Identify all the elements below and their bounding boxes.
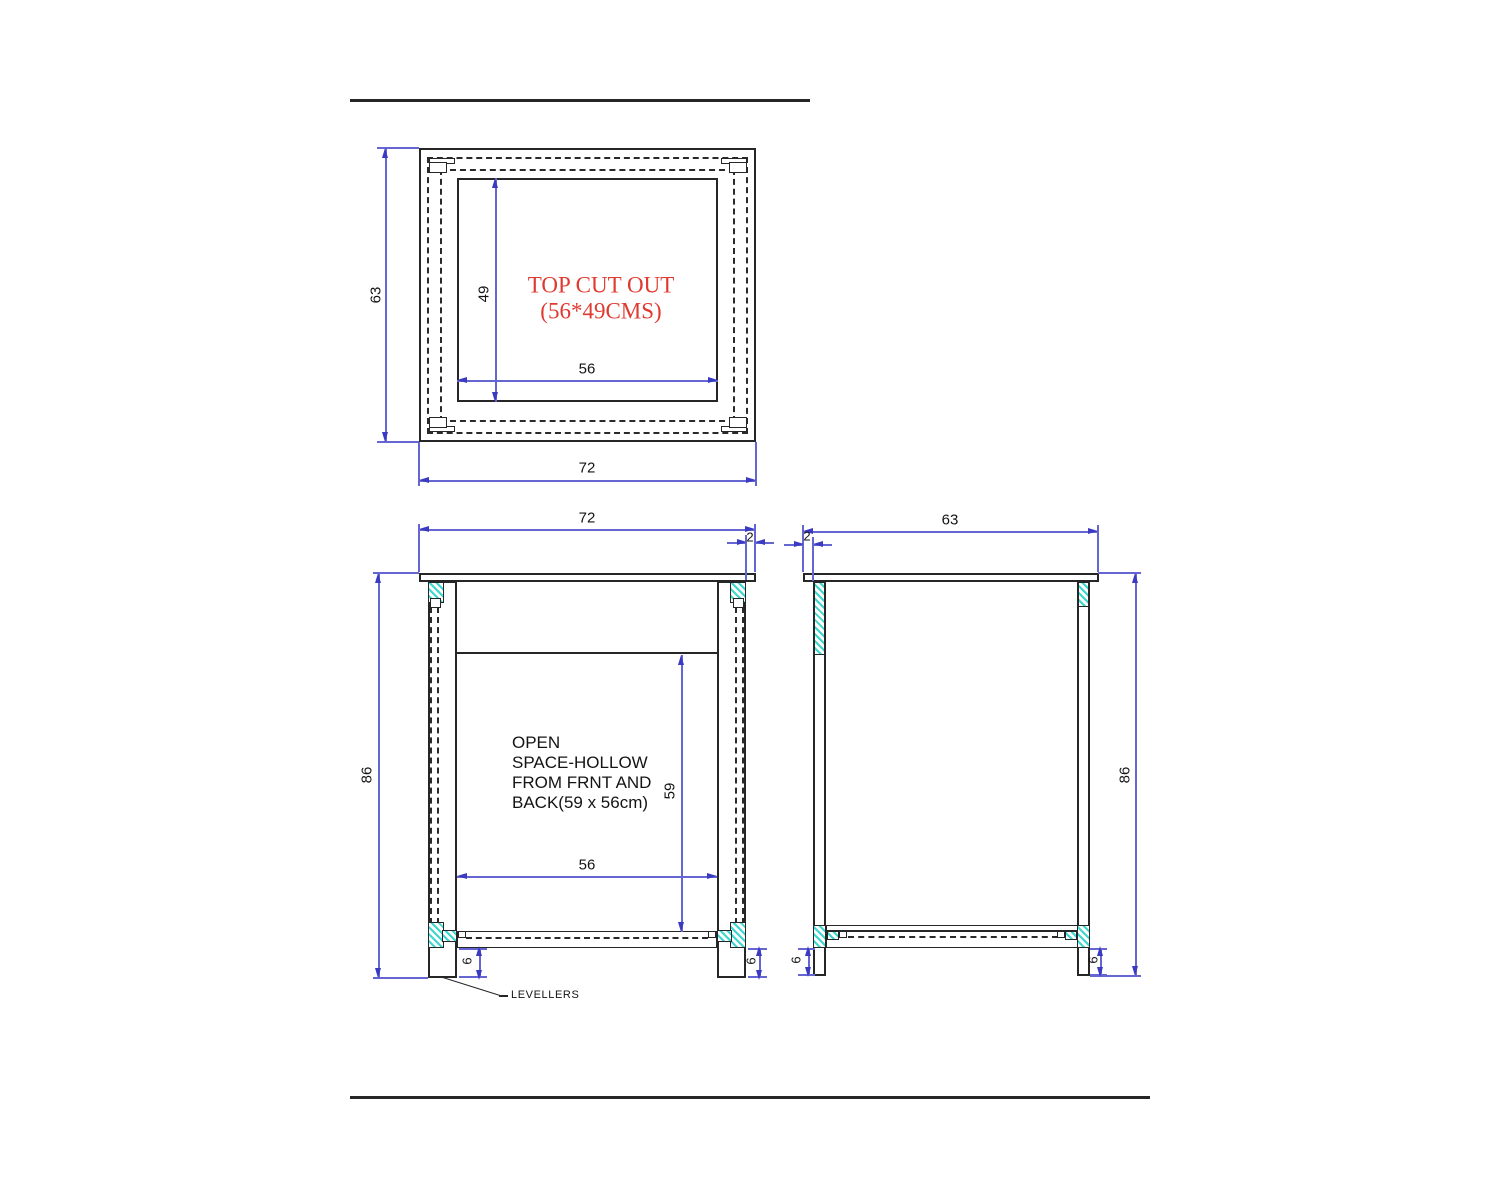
dimension-line-56 bbox=[457, 876, 717, 878]
dimension-text-6: 6 bbox=[745, 957, 758, 964]
front-table-top bbox=[419, 573, 756, 582]
dimension-text-49: 49 bbox=[477, 286, 492, 303]
levellers-label: LEVELLERS bbox=[511, 989, 579, 1001]
hidden-line bbox=[735, 607, 737, 924]
dimension-text-56: 56 bbox=[579, 362, 596, 377]
arrow-up-icon bbox=[678, 655, 684, 665]
dimension-text-2: 2 bbox=[746, 531, 753, 544]
open-space-note-line2: SPACE-HOLLOW bbox=[512, 753, 648, 774]
leveller-leader-line bbox=[443, 977, 501, 996]
dimension-text-6: 6 bbox=[790, 956, 803, 963]
dimension-line-72 bbox=[419, 480, 756, 482]
dimension-line-56 bbox=[457, 380, 718, 382]
arrow-down-icon bbox=[382, 432, 388, 442]
arrow-right-icon bbox=[1088, 528, 1098, 534]
corner-block bbox=[429, 417, 447, 428]
hatch-block bbox=[1078, 582, 1089, 607]
extension-line bbox=[459, 976, 487, 978]
open-space-note-line1: OPEN bbox=[512, 733, 560, 754]
dimension-line-49 bbox=[495, 178, 497, 402]
open-space-note-line3: FROM FRNT AND bbox=[512, 773, 651, 794]
arrow-up-icon bbox=[756, 946, 762, 956]
hatch-block bbox=[442, 930, 457, 942]
side-table-top bbox=[803, 573, 1099, 582]
front-apron-line bbox=[457, 652, 717, 654]
arrow-up-icon bbox=[382, 148, 388, 158]
arrow-up-icon bbox=[375, 573, 381, 583]
arrow-right-icon bbox=[708, 377, 718, 383]
dimension-text-59: 59 bbox=[663, 783, 678, 800]
arrow-down-icon bbox=[1132, 966, 1138, 976]
sheet-bottom-rule bbox=[350, 1096, 1150, 1099]
arrow-up-icon bbox=[476, 946, 482, 956]
hatch-block bbox=[730, 922, 746, 948]
arrow-down-icon bbox=[492, 392, 498, 402]
hidden-line bbox=[848, 936, 1058, 938]
open-space-note-line4: BACK(59 x 56cm) bbox=[512, 793, 648, 814]
hatch-block bbox=[717, 930, 732, 942]
hidden-line bbox=[430, 607, 432, 924]
dimension-line-63 bbox=[385, 148, 387, 442]
dimension-text-56: 56 bbox=[579, 858, 596, 873]
arrow-right-icon bbox=[707, 873, 717, 879]
arrow-down-icon bbox=[476, 970, 482, 980]
dimension-text-63: 63 bbox=[369, 287, 384, 304]
arrow-down-icon bbox=[678, 922, 684, 932]
dimension-text-72: 72 bbox=[579, 461, 596, 476]
dowel-block bbox=[430, 598, 441, 608]
arrow-up-icon bbox=[805, 946, 811, 956]
side-back-leg bbox=[1077, 581, 1090, 976]
corner-block bbox=[429, 162, 447, 173]
dowel-block bbox=[839, 931, 847, 938]
dimension-text-72: 72 bbox=[579, 511, 596, 526]
front-bottom-rail bbox=[457, 931, 717, 948]
sheet-top-rule bbox=[350, 99, 810, 102]
dimension-line-86 bbox=[378, 573, 380, 978]
hatch-block bbox=[814, 582, 825, 655]
dimension-text-2: 2 bbox=[803, 530, 810, 543]
dimension-line-63 bbox=[803, 531, 1098, 533]
hatch-block bbox=[813, 925, 826, 948]
arrow-up-icon bbox=[1097, 946, 1103, 956]
arrow-up-icon bbox=[492, 178, 498, 188]
arrow-down-icon bbox=[805, 967, 811, 977]
hidden-line bbox=[466, 937, 708, 939]
top-cutout-annotation-line1: TOP CUT OUT bbox=[528, 272, 675, 299]
hidden-line bbox=[742, 607, 744, 924]
arrow-left-icon bbox=[419, 526, 429, 532]
dowel-block bbox=[1057, 931, 1065, 938]
hatch-block bbox=[1065, 931, 1077, 940]
dimension-text-6: 6 bbox=[461, 957, 474, 964]
dowel-block bbox=[733, 598, 744, 608]
arrow-down-icon bbox=[1097, 967, 1103, 977]
leveller-leader-line bbox=[499, 995, 508, 997]
arrow-left-icon bbox=[457, 377, 467, 383]
hatch-block bbox=[1077, 925, 1090, 948]
dimension-line-86 bbox=[1135, 573, 1137, 976]
cad-drawing-sheet: TOP CUT OUT (56*49CMS) 63 49 56 72 bbox=[0, 0, 1500, 1200]
dimension-text-86: 86 bbox=[1118, 767, 1133, 784]
arrow-down-icon bbox=[375, 968, 381, 978]
dimension-text-6: 6 bbox=[1087, 956, 1100, 963]
hidden-line bbox=[437, 607, 439, 924]
dowel-block bbox=[458, 931, 466, 938]
corner-block bbox=[729, 162, 747, 173]
front-left-leg bbox=[428, 581, 457, 978]
dimension-text-63: 63 bbox=[942, 513, 959, 528]
arrow-left-icon bbox=[457, 873, 467, 879]
extension-line bbox=[373, 977, 428, 979]
arrow-down-icon bbox=[756, 970, 762, 980]
arrow-up-icon bbox=[1132, 573, 1138, 583]
arrow-left-icon bbox=[813, 541, 823, 547]
dimension-text-86: 86 bbox=[360, 767, 375, 784]
arrow-right-icon bbox=[746, 477, 756, 483]
arrow-left-icon bbox=[419, 477, 429, 483]
dimension-line-59 bbox=[681, 655, 683, 932]
hatch-block bbox=[827, 931, 839, 940]
dowel-block bbox=[708, 931, 716, 938]
corner-block bbox=[729, 417, 747, 428]
arrow-left-icon bbox=[755, 539, 765, 545]
side-rail-inner-line bbox=[827, 930, 1077, 932]
dimension-line-72 bbox=[419, 529, 755, 531]
top-cutout-annotation-line2: (56*49CMS) bbox=[540, 298, 661, 325]
extension-line bbox=[459, 948, 487, 950]
